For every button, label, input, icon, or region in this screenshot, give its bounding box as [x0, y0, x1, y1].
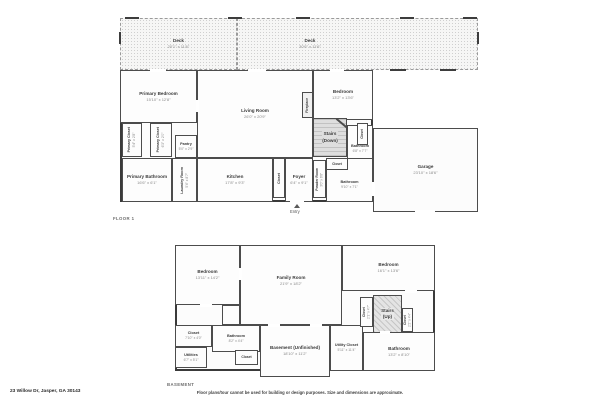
deck-post	[440, 69, 456, 72]
room-bedroom-f1: Bedroom 13'2" x 13'6"	[313, 70, 373, 120]
entry-door-gap	[290, 200, 304, 203]
vestibule	[222, 305, 240, 325]
room-label: Closet 7'10" x 4'0"	[185, 331, 202, 341]
room-bathroom-bl: Bathroom 8'2" x 4'4"	[212, 325, 260, 352]
stairs-label: Stairs (Up)	[381, 308, 394, 320]
door-gap	[310, 324, 322, 327]
room-powder-room: Powder Room 3'0" x 6'8"	[313, 160, 326, 198]
room-family-room: Family Room 21'9" x 18'2"	[240, 245, 342, 325]
deck-post	[463, 17, 477, 20]
deck-left: Deck 20'1" x 11'6"	[120, 18, 237, 70]
room-label: Bedroom 13'11" x 14'2"	[196, 269, 220, 281]
deck-post	[125, 17, 139, 20]
room-label: Primary Bathroom 16'6" x 6'1"	[127, 174, 167, 186]
room-label: Basement (Unfinished) 18'10" x 11'2"	[270, 345, 320, 357]
floor1-caption: FLOOR 1	[113, 216, 134, 221]
door-gap	[372, 182, 375, 196]
room-garage: Garage 23'10" x 18'6"	[373, 128, 478, 212]
room-pantry: Pantry 5'0" x 2'9"	[175, 135, 197, 158]
room-closet-stairs-right: Closet 2'2" x 4'4"	[402, 308, 413, 332]
room-label: Closet	[332, 162, 342, 166]
door-gap	[405, 290, 417, 293]
room-foyer: Foyer 6'4" x 9'1"	[285, 158, 313, 202]
floor-plan-page: Deck 20'1" x 11'6" Deck 30'6" x 11'6" Pr…	[0, 0, 600, 400]
stairs-up: Stairs (Up)	[373, 295, 402, 333]
room-label: Bathroom 6'8" x 7'7"	[351, 144, 369, 154]
room-label: Primary Closet 6'3" x 2'0"	[156, 127, 165, 152]
room-label: Primary Closet 5'4" x 2'8"	[127, 127, 136, 152]
room-bathroom-br: Bathroom 13'2" x 8'10"	[363, 332, 435, 371]
room-kitchen: Kitchen 17'8" x 9'3"	[197, 158, 273, 202]
fireplace-label: Fireplace	[305, 98, 310, 113]
basement-caption: BASEMENT	[167, 382, 194, 387]
room-label: Bedroom 16'1" x 13'6"	[378, 262, 400, 274]
room-label: Utilities 6'7" x 5'1"	[184, 353, 199, 363]
room-utilities: Utilities 6'7" x 5'1"	[175, 347, 207, 368]
room-label: Foyer 6'4" x 9'1"	[290, 174, 308, 186]
door-gap	[380, 331, 390, 334]
stairs-label: Stairs (Down)	[322, 131, 338, 143]
deck-right-label: Deck 30'6" x 11'6"	[299, 38, 321, 50]
room-closet-bath: Closet	[357, 123, 368, 145]
room-label: Garage 23'10" x 18'6"	[413, 164, 437, 176]
room-label: Closet 2'2" x 4'4"	[403, 313, 412, 327]
deck-post	[228, 17, 242, 20]
deck-post	[400, 17, 414, 20]
room-primary-closet-2: Primary Closet 6'3" x 2'0"	[150, 123, 172, 157]
garage-door-gap	[415, 210, 435, 213]
room-primary-bedroom: Primary Bedroom 15'10" x 12'8"	[120, 70, 197, 123]
room-utility-closet: Utility Closet 5'11" x 11'4"	[330, 325, 363, 371]
room-label: Closet	[241, 355, 251, 360]
room-label: Kitchen 17'8" x 9'3"	[225, 174, 245, 186]
room-primary-bathroom: Primary Bathroom 16'6" x 6'1"	[122, 158, 172, 202]
deck-post	[390, 69, 406, 72]
entry-label: Entry	[290, 209, 300, 214]
room-bedroom-br: Bedroom 16'1" x 13'6"	[342, 245, 435, 291]
fireplace: Fireplace	[302, 92, 313, 118]
door-gap	[248, 69, 266, 72]
room-label: Bathroom 8'2" x 4'4"	[227, 334, 245, 344]
deck-post	[296, 17, 310, 20]
door-gap	[239, 268, 242, 280]
room-label: Bathroom 13'2" x 8'10"	[388, 346, 410, 358]
room-label: Closet	[277, 173, 282, 184]
door-gap	[150, 69, 166, 72]
room-label: Laundry Room 5'4" x 8'7"	[180, 167, 190, 194]
room-closet-mid: Closet	[326, 158, 348, 170]
entry-arrow-icon	[294, 204, 300, 208]
room-laundry-room: Laundry Room 5'4" x 8'7"	[172, 158, 197, 202]
door-gap	[200, 304, 212, 307]
room-label: Bedroom 13'2" x 13'6"	[332, 89, 354, 101]
door-gap	[196, 100, 199, 112]
room-label: Bathroom 9'10" x 7'1"	[341, 180, 359, 190]
room-closet-stairs-left: Closet 2'1" x 4'7"	[360, 297, 373, 327]
room-label: Utility Closet 5'11" x 11'4"	[335, 343, 358, 353]
disclaimer-text: Floor plans/tour cannot be used for buil…	[0, 390, 600, 395]
room-label: Closet 2'1" x 4'7"	[362, 305, 371, 319]
room-living-room: Living Room 26'0" x 20'9"	[197, 70, 313, 158]
room-label: Powder Room 3'0" x 6'8"	[315, 168, 324, 191]
room-label: Living Room 26'0" x 20'9"	[241, 108, 269, 120]
room-basement-unfinished: Basement (Unfinished) 18'10" x 11'2"	[260, 325, 330, 377]
room-label: Family Room 21'9" x 18'2"	[277, 275, 306, 287]
room-closet-bl: Closet 7'10" x 4'0"	[175, 325, 212, 347]
deck-post	[119, 32, 122, 44]
room-closet-kitchen: Closet	[273, 158, 285, 198]
door-gap	[268, 324, 280, 327]
door-gap	[330, 69, 344, 72]
room-bedroom-bl: Bedroom 13'11" x 14'2"	[175, 245, 240, 305]
deck-post	[477, 32, 480, 44]
room-primary-closet-1: Primary Closet 5'4" x 2'8"	[122, 123, 142, 157]
room-closet-small: Closet	[235, 350, 258, 365]
room-label: Primary Bedroom 15'10" x 12'8"	[139, 91, 178, 103]
room-label: Pantry 5'0" x 2'9"	[179, 142, 194, 152]
room-label: Closet	[360, 129, 364, 139]
deck-left-label: Deck 20'1" x 11'6"	[168, 38, 190, 50]
deck-right: Deck 30'6" x 11'6"	[237, 18, 478, 70]
